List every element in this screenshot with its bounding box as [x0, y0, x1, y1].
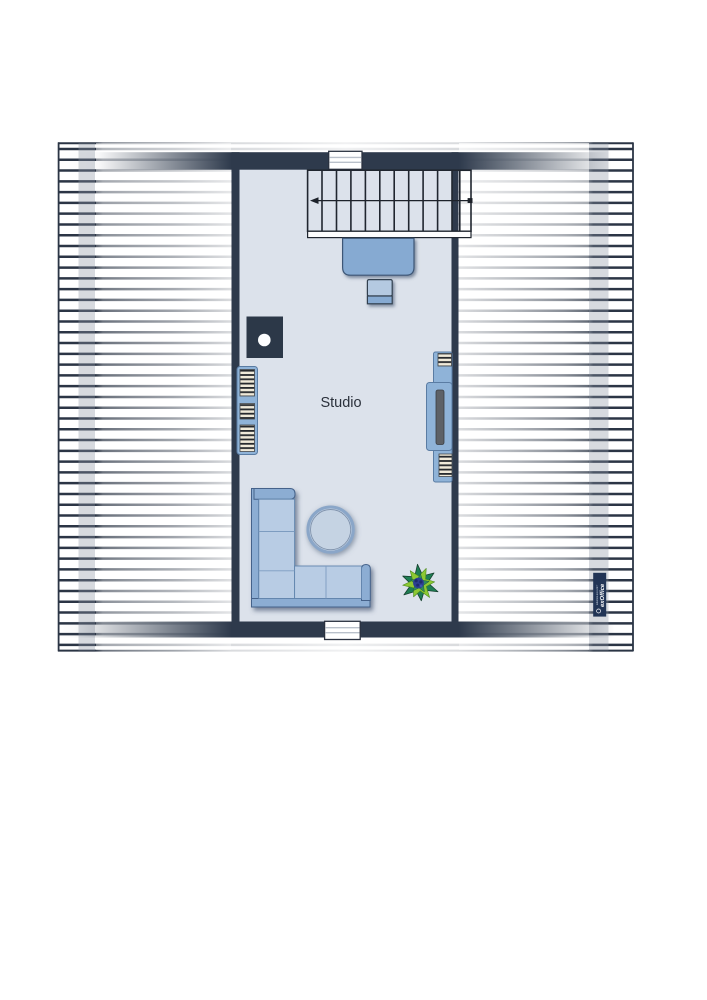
svg-text:exOffice: exOffice	[599, 583, 606, 607]
svg-text:Studio: Studio	[320, 395, 361, 411]
svg-text:IMMOBILIEN SOFT: IMMOBILIEN SOFT	[596, 584, 599, 605]
